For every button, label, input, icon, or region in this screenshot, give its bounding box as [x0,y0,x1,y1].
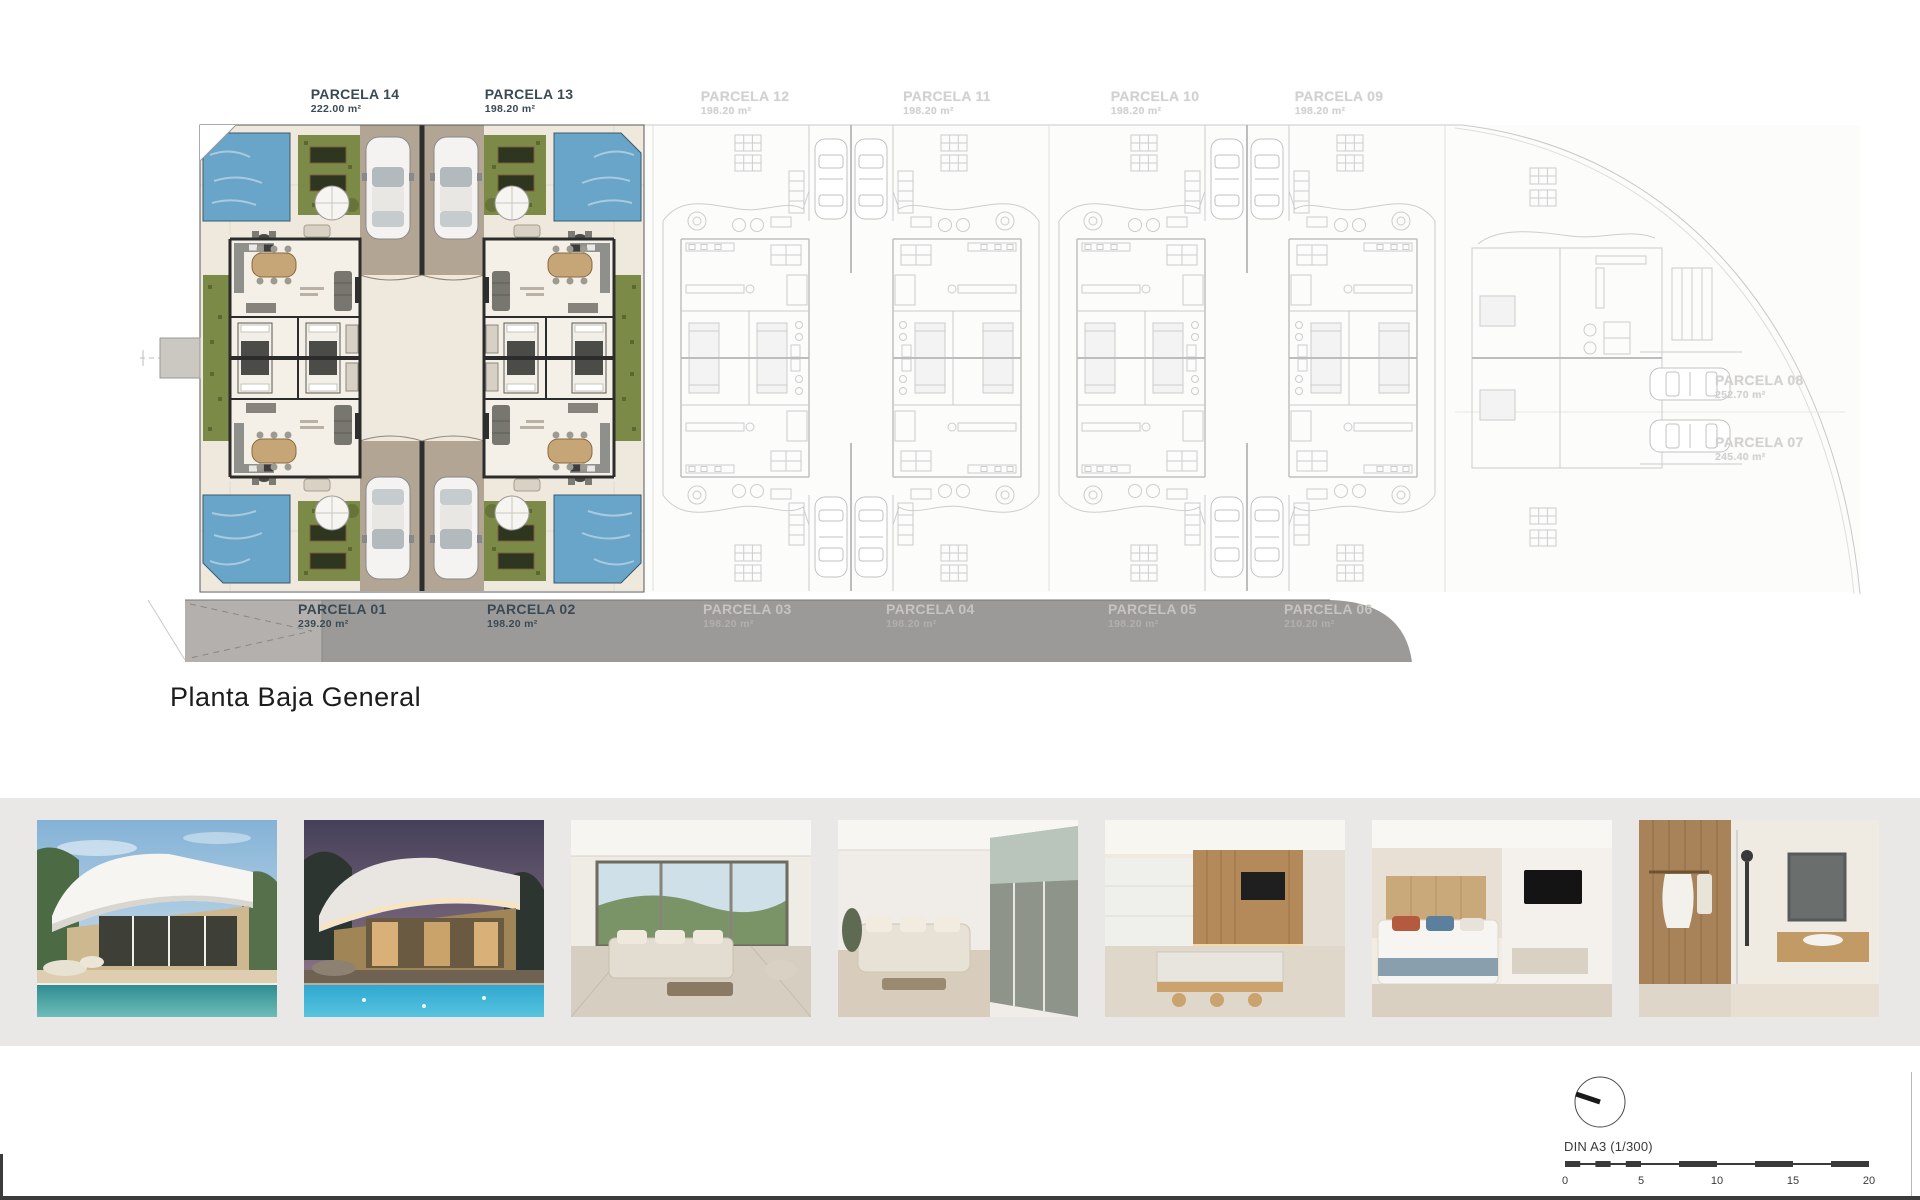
parcel-label-03: PARCELA 03198.20 m² [703,601,792,630]
kitchen-image [1105,820,1345,1017]
bathroom-image [1639,820,1879,1017]
photo-interior-bedroom [1372,820,1612,1017]
svg-text:10: 10 [1711,1175,1723,1187]
north-compass-icon [1572,1074,1628,1130]
page-title: Planta Baja General [170,682,421,713]
sheet-bottom-border [0,1196,1920,1200]
photo-interior-bathroom [1639,820,1879,1017]
floor-plan-sheet: PARCELA 14222.00 m² PARCELA 13198.20 m² … [0,0,1920,1200]
svg-text:15: 15 [1787,1175,1799,1187]
site-plan-drawing [0,0,1920,780]
parcel-label-02: PARCELA 02198.20 m² [487,601,576,630]
photo-interior-kitchen [1105,820,1345,1017]
parcel-label-08: PARCELA 08252.70 m² [1715,372,1804,401]
photo-interior-living-terrace [571,820,811,1017]
sheet-left-border [0,1154,3,1200]
parcel-label-10: PARCELA 10198.20 m² [1111,88,1200,117]
villa-day-image [37,820,277,1017]
villa-dusk-image [304,820,544,1017]
parcel-label-12: PARCELA 12198.20 m² [701,88,790,117]
svg-text:5: 5 [1638,1175,1644,1187]
gallery-band [0,798,1920,1046]
bedroom-image [1372,820,1612,1017]
parcel-label-06: PARCELA 06210.20 m² [1284,601,1373,630]
svg-text:0: 0 [1562,1175,1568,1187]
photo-villa-exterior-dusk [304,820,544,1017]
photo-interior-living-room [838,820,1078,1017]
parcel-label-11: PARCELA 11198.20 m² [903,88,991,117]
living-room-image [838,820,1078,1017]
parcel-label-13: PARCELA 13198.20 m² [485,86,574,115]
parcel-label-01: PARCELA 01239.20 m² [298,601,387,630]
parcel-label-14: PARCELA 14222.00 m² [311,86,400,115]
sheet-right-edge [1911,1072,1912,1196]
parcel-label-05: PARCELA 05198.20 m² [1108,601,1197,630]
scale-bar: 0 5 10 15 20 [1560,1152,1880,1192]
living-terrace-image [571,820,811,1017]
colored-villa-block [160,125,644,592]
parcel-label-07: PARCELA 07245.40 m² [1715,434,1804,463]
parcel-label-04: PARCELA 04198.20 m² [886,601,975,630]
svg-text:20: 20 [1863,1175,1875,1187]
photo-villa-exterior-day [37,820,277,1017]
parcel-label-09: PARCELA 09198.20 m² [1295,88,1384,117]
